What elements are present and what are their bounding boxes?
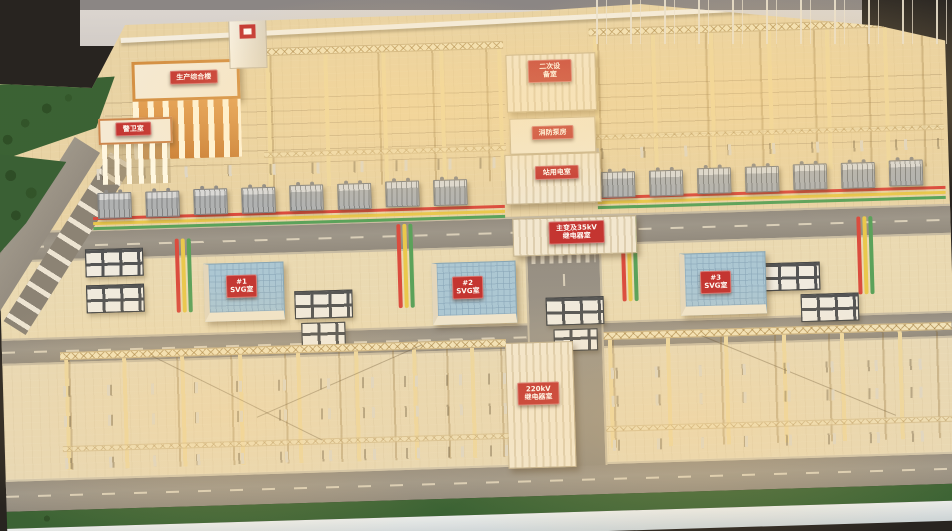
sign-fire-pump: 消防泵房 [531, 125, 573, 141]
transformer-unit [193, 188, 228, 215]
sign-admin-building: 生产综合楼 [170, 69, 218, 85]
transformer-unit [97, 192, 132, 219]
guard-house-walls [102, 143, 171, 185]
equipment-rack [762, 262, 821, 292]
transformer-unit [793, 163, 828, 190]
relay-220kv-building [505, 341, 577, 469]
sign-main-transformer-relay: 主变及35kV 继电器室 [548, 220, 605, 244]
sign-svg-room-1: #1 SVG室 [226, 274, 258, 298]
transformer-unit [145, 191, 180, 218]
sign-svg-room-2: #2 SVG室 [452, 276, 484, 300]
equipment-rack [294, 289, 353, 319]
sign-station-power: 站用电室 [535, 165, 579, 181]
sign-secondary-equipment: 二次设 备室 [528, 59, 573, 83]
sign-guard-house: 警卫室 [115, 121, 151, 136]
transformer-unit [697, 167, 732, 194]
transformer-unit [385, 180, 420, 207]
transformer-unit [649, 170, 684, 197]
transformer-unit [745, 166, 780, 193]
tower-roof-emblem [239, 24, 255, 38]
transformer-unit [337, 183, 372, 210]
transformer-unit [433, 179, 468, 206]
model-surface: 生产综合楼 警卫室 二次设 备室 消防泵房 站用电室 主变及35kV 继电器室 … [0, 0, 952, 531]
transformer-unit [889, 160, 924, 187]
sign-relay-220kv: 220kV 继电器室 [517, 381, 560, 405]
equipment-rack [86, 284, 145, 314]
equipment-rack [801, 292, 860, 322]
equipment-rack [546, 296, 605, 326]
transformer-unit [241, 187, 276, 214]
model-table: 生产综合楼 警卫室 二次设 备室 消防泵房 站用电室 主变及35kV 继电器室 … [0, 0, 952, 531]
substation-model-photo: 生产综合楼 警卫室 二次设 备室 消防泵房 站用电室 主变及35kV 继电器室 … [0, 0, 952, 531]
transformer-unit [289, 184, 324, 211]
transformer-unit [841, 162, 876, 189]
transformer-unit [601, 171, 636, 198]
sign-svg-room-3: #3 SVG室 [700, 270, 732, 294]
equipment-rack [85, 248, 144, 278]
